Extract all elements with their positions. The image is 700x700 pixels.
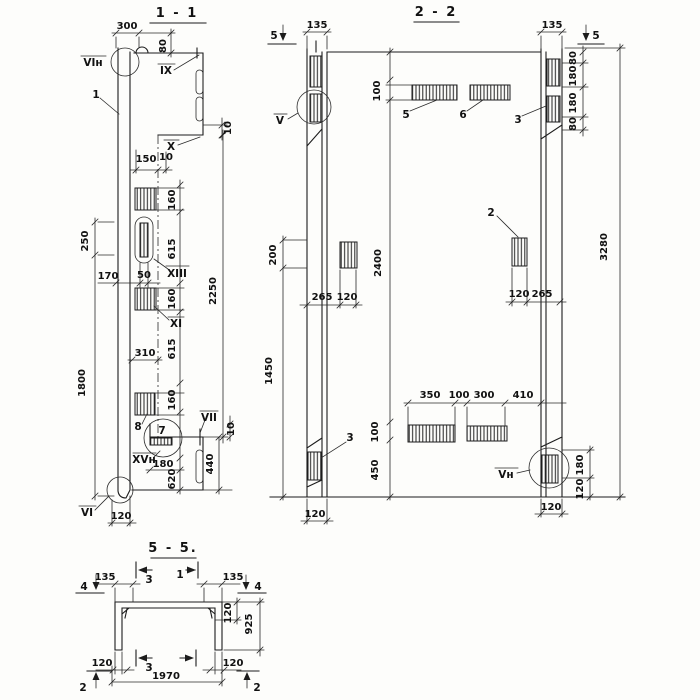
detail-circle-vi [107,477,133,503]
column-embed [542,455,558,483]
dim-135: 135 [223,572,244,583]
column-embed [310,56,322,87]
cut-label-5: 5 [270,30,277,42]
dim-2250: 2250 [208,277,219,305]
embed-plate [408,425,455,442]
dim-265: 265 [532,289,553,300]
dim-80: 80 [158,39,169,53]
cut-label-2: 2 [253,682,260,694]
part-8: 8 [134,421,141,433]
mark-xi: XI [170,318,182,330]
dim-120: 120 [305,509,326,520]
mark-vin: VIн [83,57,102,69]
part-7: 7 [158,425,165,437]
dim-1970: 1970 [152,671,180,682]
cut-label-4: 4 [254,581,261,593]
dim-1450: 1450 [264,357,275,385]
cut-label-5: 5 [592,30,599,42]
section-title: 5 - 5. [148,541,197,556]
section-5-5: 5 - 5. 4 4 3 1 3 2 2 135 [76,541,266,694]
mark-x: X [167,141,175,153]
cut-label-4: 4 [80,581,87,593]
dim-170: 170 [98,271,119,282]
dim-10: 10 [159,152,173,163]
dim-lines [96,581,264,686]
embed-plate-2 [512,238,527,266]
column-embed [547,96,560,122]
cut-label-1: 1 [176,569,183,581]
dim-620: 620 [167,469,178,490]
dim-200: 200 [268,245,279,266]
section-2-2: 2 - 2 5 5 135 135 [264,5,625,524]
lifting-slot-bar [140,223,148,257]
cut-label-2: 2 [79,682,86,694]
mark-xiii: XIII [167,268,187,280]
dim-3280: 3280 [599,233,610,261]
dim-135: 135 [542,20,563,31]
section-title: 1 - 1 [156,6,199,21]
column-embed [310,94,322,122]
dim-350: 350 [420,390,441,401]
mark-vn: Vн [498,469,513,481]
ledge-hatch [150,438,172,445]
cut-arrowhead [187,567,196,574]
dim-120: 120 [541,502,562,513]
dim-100: 100 [370,422,381,443]
section-title: 2 - 2 [415,5,458,20]
part-2: 2 [487,207,494,219]
mark-xvn: XVн [132,454,155,466]
cut-arrowhead [243,582,250,590]
section-1-1: 1 - 1 300 80 10 150 10 160 615 160 615 1 [77,6,237,526]
keyway-slot [196,450,203,483]
embed-plate [467,426,507,441]
dim-180: 180 [568,66,579,87]
dim-925: 925 [244,614,255,635]
dim-160: 160 [167,190,178,211]
mark-v: V [276,115,285,127]
dim-100: 100 [449,390,470,401]
embed-plate [340,242,357,268]
dim-2400: 2400 [373,249,384,277]
dim-120: 120 [337,292,358,303]
detail-circle-vin [111,48,139,76]
dim-180: 180 [568,93,579,114]
cut-arrowhead [138,655,147,662]
dim-120: 120 [92,658,113,669]
dim-450: 450 [370,460,381,481]
dim-120: 120 [509,289,530,300]
dim-265: 265 [312,292,333,303]
dim-80: 80 [568,117,579,131]
column-embed [308,452,321,480]
dim-615: 615 [167,339,178,360]
dim-615: 615 [167,239,178,260]
cut-label-3: 3 [145,574,152,586]
embed-plate-5 [412,85,457,100]
channel-outline [115,602,222,650]
part-6: 6 [459,109,466,121]
dim-150: 150 [136,154,157,165]
dim-120: 120 [575,479,586,500]
dim-10: 10 [223,121,234,135]
keyway-slot [196,97,203,121]
dim-160: 160 [167,390,178,411]
cut-arrowhead [93,582,100,590]
embed-plate-6 [470,85,510,100]
embed-plate [135,288,156,310]
dim-100: 100 [372,81,383,102]
dim-135: 135 [307,20,328,31]
dim-180: 180 [575,455,586,476]
dim-300: 300 [474,390,495,401]
cut-arrowhead [244,672,251,680]
dim-300: 300 [117,21,138,32]
cut-arrowhead [93,672,100,680]
column-embed [547,59,560,86]
dim-50: 50 [137,270,151,281]
dim-120: 120 [111,511,132,522]
dim-80: 80 [568,51,579,65]
dim-250: 250 [80,231,91,252]
part-1: 1 [92,89,99,101]
embed-plate [135,393,155,415]
mark-ix: IX [160,65,172,77]
part-5: 5 [402,109,409,121]
embed-plate [135,188,156,210]
drawing-sheet: 1 - 1 300 80 10 150 10 160 615 160 615 1 [0,0,700,700]
mark-vii: VII [201,412,217,424]
cut-arrowhead [280,33,287,41]
dim-135: 135 [95,572,116,583]
dim-120: 120 [223,603,234,624]
cut-arrowhead [185,655,194,662]
dim-410: 410 [513,390,534,401]
dim-10: 10 [226,422,237,436]
cut-arrowhead [138,567,147,574]
part-3: 3 [346,432,353,444]
dim-440: 440 [205,454,216,475]
mark-vi: VI [81,507,93,519]
cut-arrowhead [583,33,590,41]
dim-120: 120 [223,658,244,669]
keyway-slot [196,70,203,94]
dim-310: 310 [135,348,156,359]
engineering-drawing: 1 - 1 300 80 10 150 10 160 615 160 615 1 [0,0,700,700]
dim-160: 160 [167,289,178,310]
part-3: 3 [514,114,521,126]
dim-1800: 1800 [77,369,88,397]
